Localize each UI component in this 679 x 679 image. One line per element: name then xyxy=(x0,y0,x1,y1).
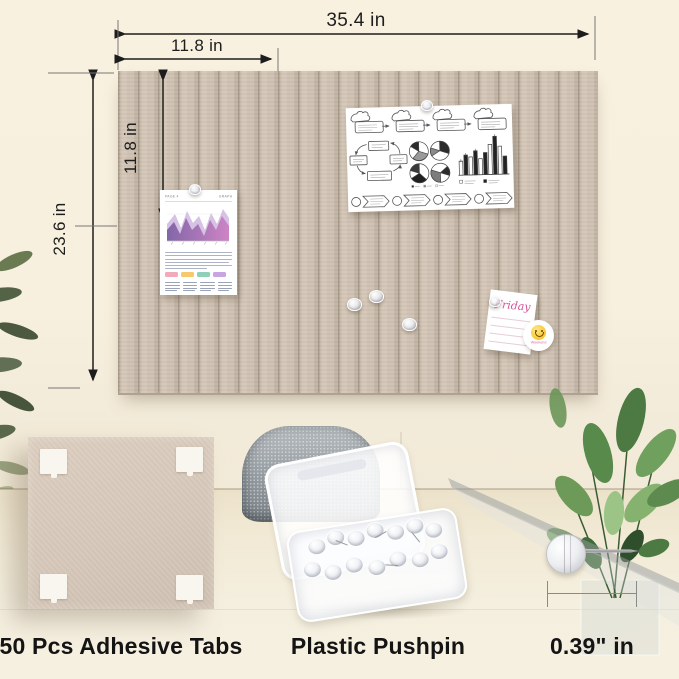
pushpin-head xyxy=(546,534,586,574)
pushpin-needle xyxy=(581,549,639,553)
size-measure-tick xyxy=(636,581,637,607)
glass-desk-edge xyxy=(0,0,679,679)
adhesive-tabs-label: 50 Pcs Adhesive Tabs xyxy=(0,633,243,660)
product-image: 35.4 in 11.8 in 11.8 in 23.6 in PAGE 4 G… xyxy=(0,0,679,679)
size-measure-line xyxy=(547,593,637,594)
pushpin-box-label: Plastic Pushpin xyxy=(291,633,465,660)
pin-size-label: 0.39" in xyxy=(550,633,634,660)
size-measure-tick xyxy=(547,581,548,607)
